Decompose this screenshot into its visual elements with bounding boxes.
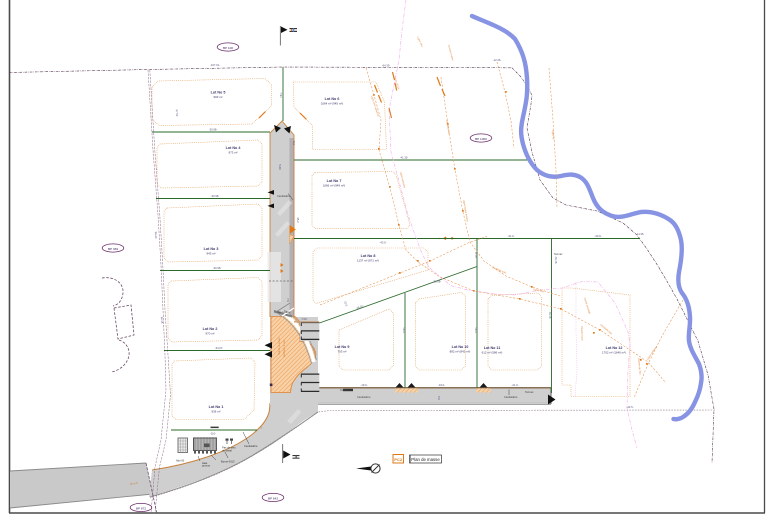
svg-text:Tarmac: Tarmac xyxy=(340,388,349,392)
svg-text:Chemin rural: Chemin rural xyxy=(580,326,584,341)
svg-text:Tarmac: Tarmac xyxy=(554,252,563,256)
svg-text:943 m²: 943 m² xyxy=(207,252,216,256)
svg-text:surface 1.3a: surface 1.3a xyxy=(282,340,286,357)
svg-text:993 m²: 993 m² xyxy=(214,95,223,99)
svg-text:BP 872: BP 872 xyxy=(136,506,146,510)
svg-text:Tarmac: Tarmac xyxy=(525,390,534,394)
svg-text:-30.98-: -30.98- xyxy=(211,194,220,198)
svg-text:Lot No 2: Lot No 2 xyxy=(203,327,218,331)
svg-text:703 m²: 703 m² xyxy=(338,350,347,354)
svg-text:BP 642: BP 642 xyxy=(268,496,278,500)
svg-text:-30.08-: -30.08- xyxy=(433,280,442,284)
svg-text:-30.98-: -30.98- xyxy=(213,266,222,270)
svg-text:Lot No 11: Lot No 11 xyxy=(484,346,501,350)
svg-text:-12.26-: -12.26- xyxy=(493,58,502,62)
svg-text:Lot No 12: Lot No 12 xyxy=(606,346,623,350)
svg-text:970 m²: 970 m² xyxy=(206,332,215,336)
svg-text:Lot No 6: Lot No 6 xyxy=(325,97,340,101)
svg-text:Candelabre: Candelabre xyxy=(504,395,518,399)
svg-text:5.6: 5.6 xyxy=(292,141,296,145)
svg-text:BP 100: BP 100 xyxy=(223,46,233,50)
svg-text:Candelabre: Candelabre xyxy=(277,310,291,314)
svg-text:36.15: 36.15 xyxy=(160,316,164,323)
svg-text:Plan de masse: Plan de masse xyxy=(411,457,440,462)
svg-text:Candelabre: Candelabre xyxy=(357,395,371,399)
svg-text:936 m²: 936 m² xyxy=(212,410,221,414)
svg-text:7.94: 7.94 xyxy=(279,92,283,98)
svg-text:-14.35-: -14.35- xyxy=(636,232,645,236)
svg-text:1702 m² (1640 m²): 1702 m² (1640 m²) xyxy=(602,351,626,355)
svg-text:-7.00-: -7.00- xyxy=(301,317,308,321)
svg-text:1066 m² (949 m²): 1066 m² (949 m²) xyxy=(323,184,345,188)
svg-text:612 m² (586 m²): 612 m² (586 m²) xyxy=(482,351,503,355)
svg-text:-19.0-: -19.0- xyxy=(360,383,367,387)
svg-text:5.60: 5.60 xyxy=(278,164,282,170)
svg-text:PC2: PC2 xyxy=(394,457,403,462)
svg-text:-64.35-: -64.35- xyxy=(382,63,391,67)
svg-text:-21.0-: -21.0- xyxy=(511,383,518,387)
svg-text:57.52: 57.52 xyxy=(175,109,179,116)
svg-text:Borne 6013: Borne 6013 xyxy=(221,460,235,464)
svg-text:-44.5-: -44.5- xyxy=(626,405,633,409)
svg-text:Lot No 3: Lot No 3 xyxy=(204,247,219,251)
svg-text:6.75: 6.75 xyxy=(474,252,478,258)
svg-text:-43.5-: -43.5- xyxy=(379,241,386,245)
svg-text:7.0: 7.0 xyxy=(286,298,290,302)
svg-text:-46.45-: -46.45- xyxy=(554,256,558,265)
svg-text:Candelabre: Candelabre xyxy=(277,194,291,198)
svg-text:Lot No 1: Lot No 1 xyxy=(209,405,224,409)
svg-text:-34.07-: -34.07- xyxy=(215,346,224,350)
svg-text:973 m²: 973 m² xyxy=(229,151,238,155)
svg-text:Lot No 4: Lot No 4 xyxy=(226,146,242,150)
svg-text:46.45: 46.45 xyxy=(548,312,552,319)
svg-text:-19.0-: -19.0- xyxy=(438,383,445,387)
svg-text:du betail: du betail xyxy=(222,448,232,452)
svg-text:1064 m² (945 m²): 1064 m² (945 m²) xyxy=(321,102,343,106)
svg-text:-31.0-: -31.0- xyxy=(507,234,514,238)
svg-text:-30.98-: -30.98- xyxy=(209,128,218,132)
svg-text:1137 m² (971 m²): 1137 m² (971 m²) xyxy=(357,259,379,263)
svg-text:BP 369: BP 369 xyxy=(108,247,118,251)
svg-text:-110-: -110- xyxy=(210,431,216,435)
svg-text:Lot No 8: Lot No 8 xyxy=(361,254,376,258)
svg-text:BP 1000: BP 1000 xyxy=(475,137,487,141)
svg-text:882 m² (842 m²): 882 m² (842 m²) xyxy=(450,350,471,354)
svg-text:38.40: 38.40 xyxy=(154,231,158,238)
svg-text:-107.01-: -107.01- xyxy=(210,63,220,67)
svg-text:-41.35-: -41.35- xyxy=(400,156,409,160)
svg-text:Lot No 9: Lot No 9 xyxy=(335,345,350,349)
svg-text:5.0: 5.0 xyxy=(437,396,441,400)
svg-text:35.2: 35.2 xyxy=(296,217,300,223)
svg-text:Lot No 10: Lot No 10 xyxy=(452,345,469,349)
svg-text:Lot No 5: Lot No 5 xyxy=(211,91,226,95)
svg-text:40.3: 40.3 xyxy=(402,327,406,333)
svg-text:40.3: 40.3 xyxy=(474,327,478,333)
svg-text:Abri 60: Abri 60 xyxy=(176,459,185,463)
svg-text:Voirie a creer: Voirie a creer xyxy=(277,337,281,355)
svg-text:-30.9-: -30.9- xyxy=(594,234,601,238)
svg-text:Candelabre: Candelabre xyxy=(244,444,258,448)
svg-text:prunus: prunus xyxy=(202,464,211,468)
svg-text:Lot No 7: Lot No 7 xyxy=(327,179,342,183)
